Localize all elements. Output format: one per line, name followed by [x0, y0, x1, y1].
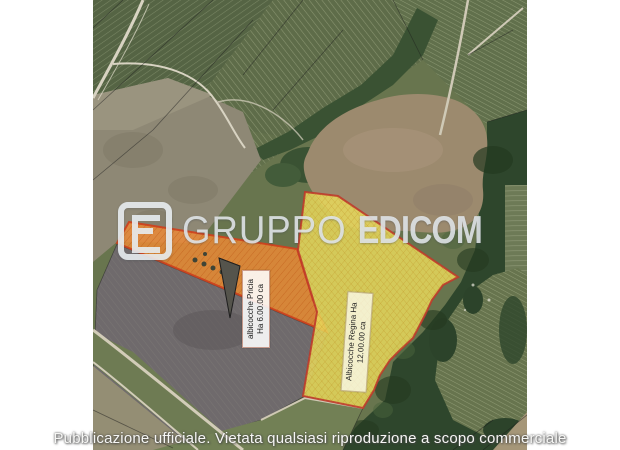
parcel-label-pricia: albicocche Pricia Ha 6.00.00 ca: [242, 270, 270, 348]
parcel-label-area: Ha 6.00.00 ca: [256, 279, 266, 339]
official-publication-disclaimer: Pubblicazione ufficiale. Vietata qualsia…: [0, 430, 620, 447]
aerial-imagery: [93, 0, 527, 450]
listing-image: albicocche Pricia Ha 6.00.00 ca Albicocc…: [0, 0, 620, 450]
parcel-label-crop: albicocche Pricia: [246, 279, 256, 339]
satellite-map[interactable]: [93, 0, 527, 450]
